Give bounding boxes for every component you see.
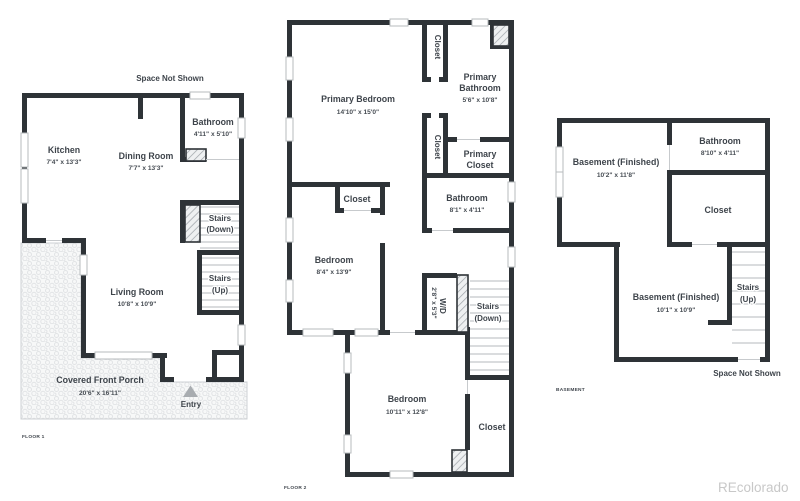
bathroom2-label: Bathroom xyxy=(446,193,488,203)
primary-bath-hatch xyxy=(493,25,509,46)
closet-hatch xyxy=(452,450,467,472)
bedroom3-dims: 10'11" x 12'8" xyxy=(386,409,428,416)
bedroom2-dims: 8'4" x 13'9" xyxy=(316,269,351,276)
floor-plan-image: Space Not Shown Kitchen 7'4" x 13'3" Din… xyxy=(0,0,800,501)
basement-bathroom-label: Bathroom xyxy=(699,136,741,146)
closet-mid-label: Closet xyxy=(433,135,442,160)
stairs-down-label: Stairs xyxy=(209,214,232,223)
wd-dims: 2'8" x 5'3" xyxy=(430,287,437,318)
stairs-down2-label: Stairs xyxy=(477,302,500,311)
entry-label: Entry xyxy=(181,400,202,409)
porch-area xyxy=(21,243,247,419)
basement-stairs-label: Stairs xyxy=(737,283,760,292)
bathroom2-dims: 8'1" x 4'11" xyxy=(450,207,485,214)
porch-label: Covered Front Porch xyxy=(56,375,144,385)
floor1-title: FLOOR 1 xyxy=(22,434,45,440)
floor-plan-page: Space Not Shown Kitchen 7'4" x 13'3" Din… xyxy=(0,0,800,501)
closet-bedroom-label: Closet xyxy=(344,194,371,204)
stairs-up-label2: (Up) xyxy=(212,286,228,295)
shower-hatch xyxy=(186,149,206,161)
floor1-space-not-shown: Space Not Shown xyxy=(136,74,204,83)
basement-closet-label: Closet xyxy=(705,205,732,215)
dining-room-label: Dining Room xyxy=(119,151,174,161)
primary-bathroom-dims: 5'6" x 10'8" xyxy=(462,97,497,104)
primary-bathroom-label2: Bathroom xyxy=(459,83,501,93)
basement-title: BASEMENT xyxy=(556,387,585,393)
closet-bottom-label: Closet xyxy=(479,422,506,432)
bedroom2-label: Bedroom xyxy=(315,255,354,265)
kitchen-dims: 7'4" x 13'3" xyxy=(46,159,81,166)
bathroom1-label: Bathroom xyxy=(192,117,234,127)
wd-hatch xyxy=(457,275,468,332)
bathroom1-dims: 4'11" x 5'10" xyxy=(194,131,232,138)
basement-windows xyxy=(556,147,563,197)
basement-bathroom-dims: 8'10" x 4'11" xyxy=(701,150,739,157)
stair-hatch xyxy=(185,205,200,242)
floor2-plan: Primary Bedroom 14'10" x 15'0" Closet Pr… xyxy=(284,19,515,491)
stairs-down2-label2: (Down) xyxy=(474,314,501,323)
primary-bedroom-dims: 14'10" x 15'0" xyxy=(337,109,379,116)
basement-room2-label: Basement (Finished) xyxy=(633,292,720,302)
basement-plan: Basement (Finished) 10'2" x 11'8" Bathro… xyxy=(556,118,781,393)
closet-top-label: Closet xyxy=(433,35,442,60)
primary-closet-label2: Closet xyxy=(467,160,494,170)
basement-space-not-shown: Space Not Shown xyxy=(713,369,781,378)
primary-closet-label: Primary xyxy=(464,149,497,159)
living-room-label: Living Room xyxy=(110,287,163,297)
stairs-down-label2: (Down) xyxy=(206,225,233,234)
living-room-dims: 10'8" x 10'9" xyxy=(118,301,157,308)
dining-room-dims: 7'7" x 13'3" xyxy=(128,165,163,172)
basement-room1-dims: 10'2" x 11'8" xyxy=(597,172,635,179)
porch-dims: 20'6" x 16'11" xyxy=(79,390,121,397)
bedroom3-label: Bedroom xyxy=(388,394,427,404)
recolorado-watermark: REcolorado xyxy=(718,480,789,495)
floor2-title: FLOOR 2 xyxy=(284,485,307,491)
basement-room1-label: Basement (Finished) xyxy=(573,157,660,167)
basement-stairs-label2: (Up) xyxy=(740,295,756,304)
kitchen-label: Kitchen xyxy=(48,145,80,155)
primary-bathroom-label: Primary xyxy=(464,72,497,82)
floor2-stair-treads xyxy=(470,281,509,370)
wd-label: W/D xyxy=(438,298,447,314)
primary-bedroom-label: Primary Bedroom xyxy=(321,94,395,104)
floor1-plan: Space Not Shown Kitchen 7'4" x 13'3" Din… xyxy=(21,74,247,440)
stairs-up-label: Stairs xyxy=(209,274,232,283)
basement-room2-dims: 10'1" x 10'9" xyxy=(657,307,696,314)
